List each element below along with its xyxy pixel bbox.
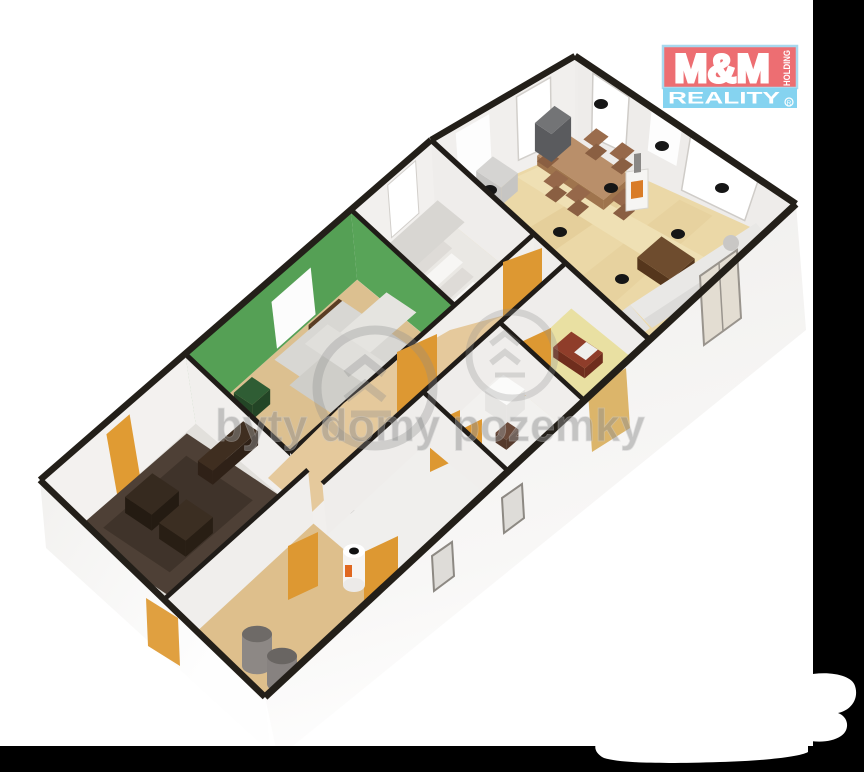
svg-text:REALITY: REALITY xyxy=(668,90,780,108)
svg-text:R: R xyxy=(787,100,792,107)
svg-text:HOLDING: HOLDING xyxy=(782,50,792,86)
svg-text:byty domy pozemky: byty domy pozemky xyxy=(215,400,645,451)
svg-text:M&M: M&M xyxy=(674,47,770,91)
